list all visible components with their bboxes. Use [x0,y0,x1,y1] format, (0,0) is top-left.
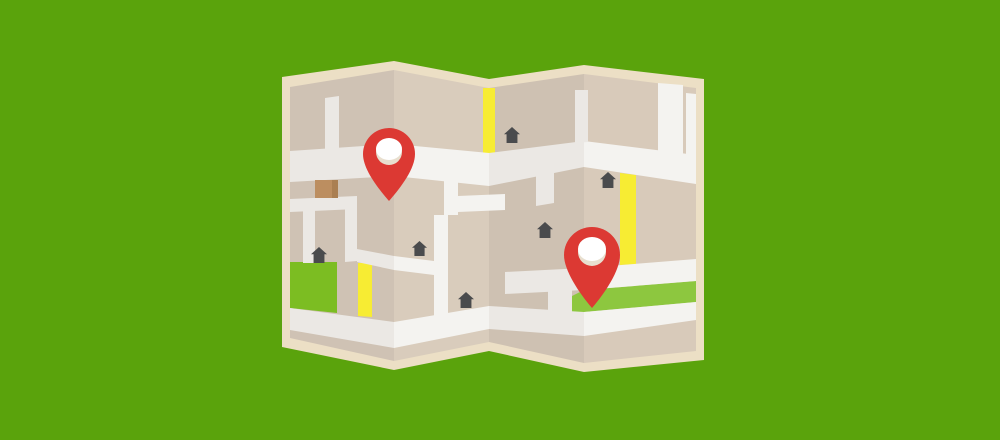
park-left [290,262,337,313]
yellow-road-panel1 [358,263,372,317]
road-panel2-branch-horizontal [458,194,505,212]
banner-illustration [0,0,1000,440]
road-panel2-branch-vertical [444,174,458,215]
road-panel2-left-vertical [434,215,448,318]
pin-hole [578,237,606,261]
road-panel4-edge-vertical [686,93,696,156]
road-fold3-vertical [575,90,588,143]
folded-map-svg [0,0,1000,440]
building-brown-shade [332,180,338,198]
road-panel3-lower-vertical [548,288,572,316]
road-panel1-right-vertical [345,206,357,262]
pin-hole [376,138,402,160]
yellow-road-fold2 [483,88,495,153]
road-panel1-top-vertical [325,96,339,153]
road-panel3-upper-vertical [536,168,554,206]
yellow-road-panel4 [620,173,636,265]
road-panel4-top-vertical [658,83,683,154]
